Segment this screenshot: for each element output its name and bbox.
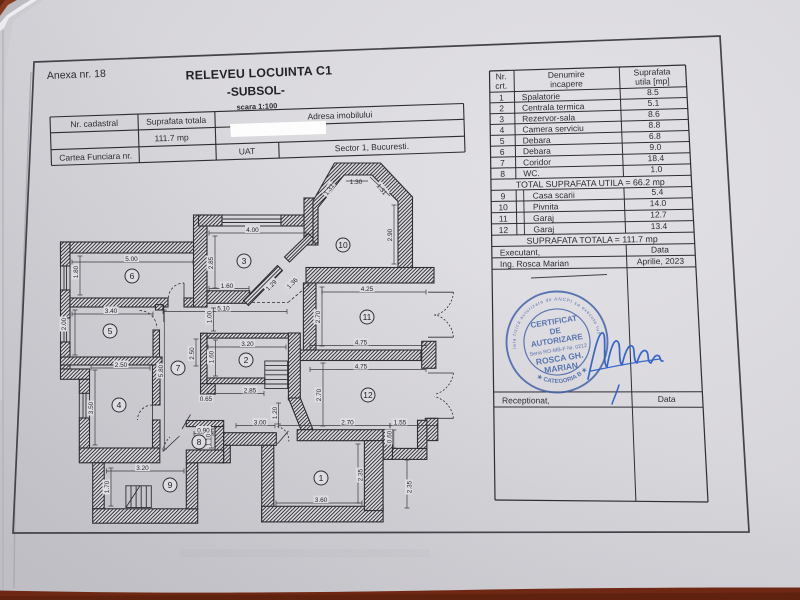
svg-text:12: 12	[499, 225, 509, 235]
svg-text:2.00: 2.00	[61, 317, 68, 330]
svg-text:Centrala termica: Centrala termica	[522, 101, 585, 113]
svg-text:12.7: 12.7	[650, 209, 667, 219]
svg-text:18.4: 18.4	[647, 153, 664, 163]
svg-text:2.50: 2.50	[115, 362, 128, 369]
svg-text:5.1: 5.1	[647, 98, 659, 108]
svg-text:Data: Data	[658, 394, 676, 404]
svg-text:9: 9	[168, 480, 173, 490]
svg-text:5.10: 5.10	[217, 306, 230, 313]
svg-text:6: 6	[500, 147, 505, 157]
svg-text:2.35: 2.35	[407, 480, 414, 493]
svg-text:1.00: 1.00	[207, 310, 214, 323]
svg-text:9.0: 9.0	[649, 142, 661, 152]
svg-text:2.85: 2.85	[244, 388, 257, 395]
svg-text:Suprafata totala: Suprafata totala	[146, 115, 207, 127]
svg-text:8.5: 8.5	[647, 87, 659, 97]
svg-text:14.0: 14.0	[650, 198, 667, 208]
svg-text:Camera serviciu: Camera serviciu	[522, 123, 584, 135]
svg-text:3.50: 3.50	[88, 401, 95, 414]
svg-text:4.00: 4.00	[246, 227, 259, 234]
svg-text:12: 12	[363, 390, 373, 400]
svg-text:1.60: 1.60	[221, 283, 234, 290]
svg-text:5.00: 5.00	[125, 256, 138, 263]
svg-text:SUPRAFATA TOTALA = 111.7 mp: SUPRAFATA TOTALA = 111.7 mp	[527, 234, 658, 246]
svg-text:6.8: 6.8	[649, 131, 661, 141]
svg-text:5: 5	[108, 326, 113, 336]
svg-text:0.65: 0.65	[200, 396, 213, 403]
svg-text:5.80: 5.80	[158, 364, 165, 377]
svg-text:Casa scarii: Casa scarii	[533, 190, 575, 201]
svg-text:Debara: Debara	[523, 135, 551, 146]
svg-text:2: 2	[244, 355, 249, 365]
svg-text:Aprilie, 2023: Aprilie, 2023	[637, 256, 685, 267]
svg-text:5: 5	[500, 136, 505, 146]
svg-text:Anexa nr. 18: Anexa nr. 18	[47, 68, 107, 82]
svg-text:Spalatorie: Spalatorie	[522, 91, 561, 102]
svg-text:1: 1	[319, 473, 324, 483]
svg-text:Executant,: Executant,	[500, 247, 540, 258]
svg-text:1: 1	[499, 93, 504, 103]
svg-text:4.25: 4.25	[361, 286, 374, 293]
svg-text:2.85: 2.85	[208, 256, 215, 269]
svg-text:4: 4	[499, 125, 504, 135]
svg-text:7: 7	[176, 363, 181, 373]
svg-text:Receptionat,: Receptionat,	[502, 395, 550, 405]
svg-text:2.70: 2.70	[316, 388, 323, 401]
svg-text:2.70: 2.70	[315, 310, 322, 323]
svg-text:2.90: 2.90	[387, 228, 394, 241]
svg-text:11: 11	[363, 312, 372, 322]
svg-text:3.60: 3.60	[315, 497, 328, 504]
svg-text:3.40: 3.40	[105, 308, 118, 315]
svg-text:-SUBSOL-: -SUBSOL-	[227, 83, 285, 99]
svg-text:Debara: Debara	[523, 146, 551, 157]
svg-text:7: 7	[500, 158, 505, 168]
svg-text:Ing. Rosca Marian: Ing. Rosca Marian	[500, 258, 569, 269]
svg-text:2: 2	[499, 103, 504, 113]
svg-text:3.20: 3.20	[136, 465, 149, 472]
svg-text:UAT: UAT	[239, 146, 256, 157]
svg-text:2.35: 2.35	[358, 468, 365, 481]
svg-text:Pivnita: Pivnita	[533, 201, 559, 211]
svg-text:4.75: 4.75	[355, 340, 368, 347]
svg-text:WC.: WC.	[523, 168, 540, 178]
svg-text:0.60: 0.60	[387, 430, 394, 443]
svg-text:4: 4	[117, 400, 122, 410]
svg-text:1.30: 1.30	[350, 179, 363, 186]
svg-text:incapere: incapere	[550, 78, 583, 89]
svg-text:13.4: 13.4	[651, 221, 668, 231]
svg-text:Data: Data	[651, 244, 669, 254]
svg-text:1.60: 1.60	[209, 350, 216, 363]
svg-text:1.0: 1.0	[650, 164, 662, 174]
svg-text:8: 8	[500, 169, 505, 179]
svg-text:1.20: 1.20	[272, 406, 279, 419]
svg-text:Adresa imobilului: Adresa imobilului	[307, 109, 372, 121]
svg-text:11: 11	[499, 214, 508, 224]
svg-text:6: 6	[130, 271, 135, 281]
svg-text:10: 10	[498, 202, 508, 212]
svg-text:111.7 mp: 111.7 mp	[154, 132, 189, 143]
svg-text:1.10: 1.10	[206, 433, 213, 446]
svg-text:2.70: 2.70	[341, 420, 354, 427]
svg-text:10: 10	[338, 240, 348, 250]
svg-text:Nr. cadastral: Nr. cadastral	[70, 118, 118, 130]
svg-text:8.6: 8.6	[648, 109, 660, 119]
svg-text:Rezervor-sala: Rezervor-sala	[522, 112, 575, 123]
svg-text:Garaj: Garaj	[533, 213, 554, 223]
svg-text:3: 3	[499, 114, 504, 124]
svg-text:5.4: 5.4	[651, 187, 663, 197]
svg-text:Coridor: Coridor	[523, 157, 551, 168]
svg-text:3.00: 3.00	[254, 420, 267, 427]
svg-text:2.50: 2.50	[189, 347, 196, 360]
svg-text:8.8: 8.8	[648, 120, 660, 130]
svg-text:utila [mp]: utila [mp]	[635, 76, 670, 87]
svg-text:1.70: 1.70	[104, 480, 111, 493]
svg-text:9: 9	[500, 191, 505, 201]
svg-text:3.20: 3.20	[241, 341, 254, 348]
svg-text:1.55: 1.55	[394, 420, 407, 427]
svg-text:3: 3	[242, 256, 247, 266]
svg-text:8: 8	[197, 437, 202, 447]
svg-text:crt.: crt.	[495, 81, 507, 91]
svg-text:1.80: 1.80	[73, 265, 80, 278]
svg-text:4.75: 4.75	[355, 364, 368, 371]
svg-text:Garaj: Garaj	[533, 224, 554, 234]
